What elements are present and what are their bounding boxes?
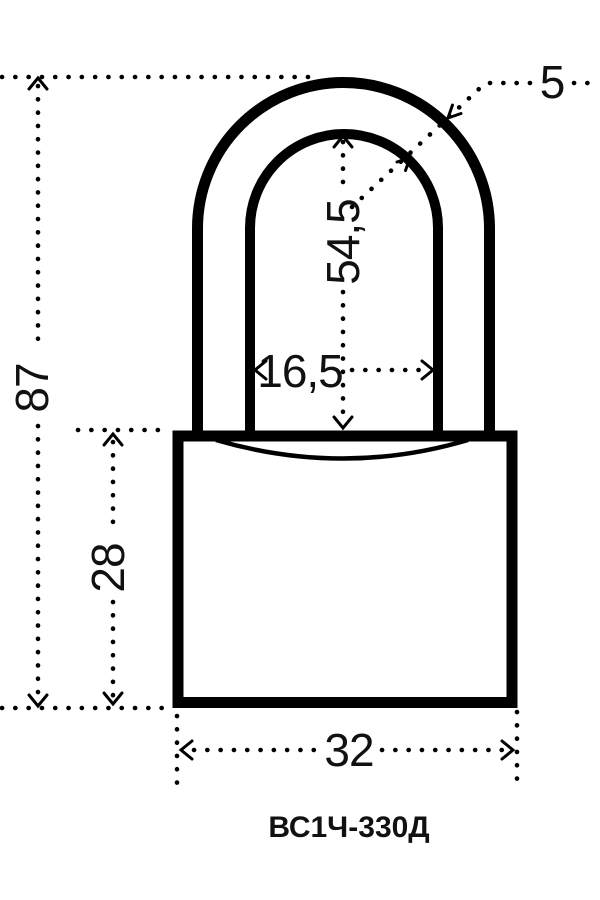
- dim-5-arrow-inner-icon: [397, 158, 410, 171]
- body-top-curve: [216, 440, 468, 459]
- padlock-outline: [178, 83, 512, 703]
- padlock-body-outline: [178, 436, 512, 703]
- dim-545-arrow-down-icon: [334, 417, 352, 428]
- model-label: ВС1Ч-330Д: [268, 811, 429, 844]
- body-width-label: 32: [324, 724, 373, 776]
- dim-87-arrow-down-icon: [29, 695, 47, 706]
- drawing-svg: 87 28 54,5 16,5 32 5: [0, 0, 600, 900]
- body-height-label: 28: [82, 543, 134, 592]
- dim-32-arrow-left-icon: [181, 741, 192, 759]
- shackle-inner-width-label: 16,5: [257, 345, 343, 397]
- padlock-technical-drawing: 87 28 54,5 16,5 32 5: [0, 0, 600, 900]
- shackle-diameter-label: 5: [540, 56, 565, 108]
- dim-165-arrow-right-icon: [422, 361, 433, 379]
- overall-height-label: 87: [6, 363, 58, 412]
- shackle-inner-height-label: 54,5: [317, 199, 369, 285]
